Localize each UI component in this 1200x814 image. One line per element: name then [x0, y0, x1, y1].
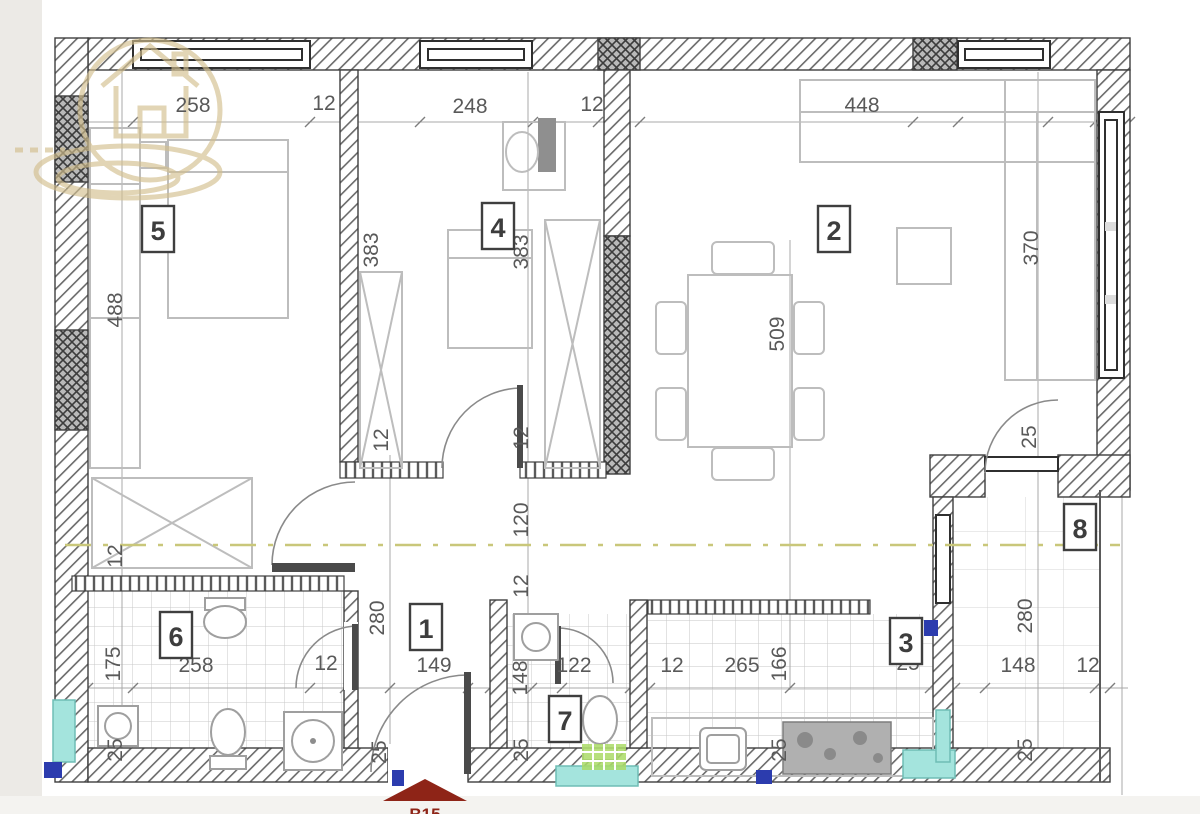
- toilet-bath6: [211, 709, 245, 755]
- dimension-label: 265: [724, 654, 759, 677]
- dimension-label: 12: [370, 428, 393, 451]
- window-top-right: [958, 41, 1050, 68]
- dimension-label: 448: [844, 94, 879, 117]
- column: [598, 38, 640, 70]
- dimension-label: 12: [510, 426, 533, 449]
- room-label-5: 5: [142, 206, 174, 252]
- dimension-label: 25: [1018, 425, 1041, 448]
- wall-bath7-kitchen: [630, 600, 647, 748]
- dining-chair: [656, 388, 686, 440]
- room-label-7: 7: [549, 696, 581, 742]
- rug: [897, 228, 951, 284]
- dimension-label: 148: [509, 660, 532, 695]
- room-label-8: 8: [1064, 504, 1096, 550]
- dimension-label: 12: [660, 654, 683, 677]
- bed-room5: [168, 140, 288, 318]
- dining-chair: [794, 388, 824, 440]
- washbasin-small: [105, 713, 131, 739]
- room-number: 3: [898, 628, 913, 658]
- dimension-label: 258: [175, 94, 210, 117]
- room4-door-arc: [442, 388, 520, 468]
- scan-margin: [0, 0, 42, 814]
- wardrobe-room4-right: [545, 220, 600, 468]
- service-marker: [756, 770, 772, 784]
- dimension-label: 383: [360, 232, 383, 267]
- dimension-label: 120: [510, 502, 533, 537]
- room-number: 6: [168, 622, 183, 652]
- room-number: 1: [418, 614, 433, 644]
- stove: [783, 722, 891, 774]
- dining-chair: [712, 448, 774, 480]
- wall-room5-bath6: [72, 576, 344, 591]
- window-teal-terrace: [936, 710, 950, 762]
- window-right-tall: [1099, 112, 1124, 378]
- dimension-label: 488: [104, 292, 127, 327]
- floorplan-screenshot: B15 258122481244848812175253831228025383…: [0, 0, 1200, 814]
- serving-window: [936, 515, 950, 603]
- dimension-label: 149: [416, 654, 451, 677]
- wall-kitchen-top: [648, 600, 870, 614]
- dimension-label: 25: [368, 740, 391, 763]
- window-latch: [1105, 295, 1116, 304]
- bath6-door-leaf: [352, 624, 358, 690]
- dimension-label: 248: [452, 95, 487, 118]
- entrance-label: B15: [409, 805, 440, 814]
- toilet-bath6-top: [204, 606, 246, 638]
- room-number: 7: [557, 706, 572, 736]
- dimension-label: 12: [580, 93, 603, 116]
- desk-unit: [538, 118, 556, 172]
- dimension-label: 25: [510, 738, 533, 761]
- wall-living-terrace-left: [930, 455, 985, 497]
- entrance-door-leaf: [464, 672, 471, 774]
- plant: [582, 744, 626, 770]
- room-label-4: 4: [482, 203, 514, 249]
- scan-margin-bottom: [0, 796, 1200, 814]
- room-label-6: 6: [160, 612, 192, 658]
- dimension-label: 280: [1014, 598, 1037, 633]
- dining-table: [656, 242, 824, 480]
- dimension-label: 122: [556, 654, 591, 677]
- window-top-middle: [420, 41, 532, 68]
- room-label-1: 1: [410, 604, 442, 650]
- dining-chair: [712, 242, 774, 274]
- window-latch: [1105, 222, 1116, 231]
- room-number: 8: [1072, 514, 1087, 544]
- service-marker: [924, 620, 938, 636]
- dimension-label: 12: [510, 574, 533, 597]
- dimension-label: 509: [766, 316, 789, 351]
- dimension-label: 148: [1000, 654, 1035, 677]
- terrace-door-threshold: [985, 457, 1058, 471]
- service-marker: [392, 770, 404, 786]
- room-label-2: 2: [818, 206, 850, 252]
- dimension-label: 280: [366, 600, 389, 635]
- wall-room4-room2-upper: [604, 70, 630, 236]
- wall-room4-hall-left: [340, 462, 443, 478]
- dining-chair: [656, 302, 686, 354]
- wall-pier: [55, 330, 88, 430]
- window-teal-left: [53, 700, 75, 762]
- dimension-label: 25: [768, 738, 791, 761]
- hall-door-arc: [272, 482, 355, 565]
- toilet-base: [210, 756, 246, 769]
- floor-plan: B15 258122481244848812175253831228025383…: [0, 0, 1200, 814]
- room-number: 5: [150, 216, 165, 246]
- dimension-label: 25: [104, 738, 127, 761]
- wall-living-terrace-right: [1058, 455, 1130, 497]
- wall-room4-room2-lower: [604, 236, 630, 474]
- dimension-label: 370: [1020, 230, 1043, 265]
- wall-room5-room4: [340, 70, 358, 462]
- service-marker: [44, 762, 62, 778]
- desk-chair: [506, 132, 538, 172]
- toilet-bath7: [583, 696, 617, 744]
- wall-hall-bath7: [490, 600, 507, 748]
- dimension-label: 12: [1076, 654, 1099, 677]
- wall-room4-hall-right: [520, 462, 606, 478]
- dimension-label: 175: [102, 646, 125, 681]
- shelf: [90, 318, 140, 468]
- dimension-label: 25: [1014, 738, 1037, 761]
- dimension-label: 166: [768, 646, 791, 681]
- hall-door-leaf: [272, 563, 355, 572]
- room-number: 4: [490, 213, 505, 243]
- column: [913, 38, 957, 70]
- dining-chair: [794, 302, 824, 354]
- room-number: 2: [826, 216, 841, 246]
- dimension-label: 12: [314, 652, 337, 675]
- dimension-label: 12: [312, 92, 335, 115]
- dimension-label: 12: [104, 544, 127, 567]
- room-label-3: 3: [890, 618, 922, 664]
